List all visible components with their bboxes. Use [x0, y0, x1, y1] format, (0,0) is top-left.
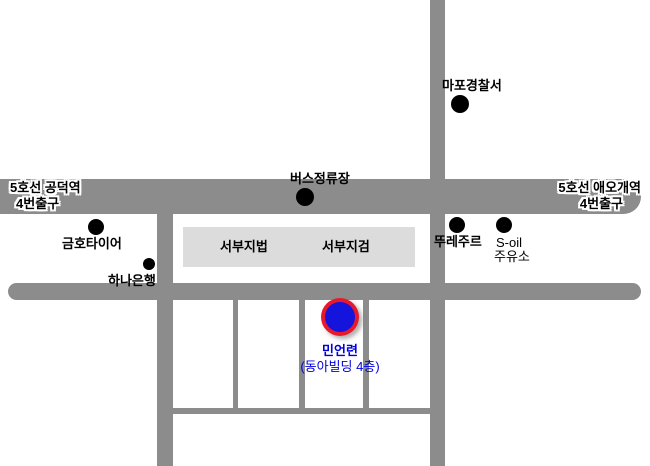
- hana-bank-dot: [143, 258, 155, 270]
- location-map: 서부지법 서부지검 5호선 공덕역 4번출구 5호선 애오개역 4번출구 마포경…: [0, 0, 650, 466]
- road-left-vertical: [157, 180, 173, 466]
- mapo-police-label: 마포경찰서: [442, 79, 502, 93]
- prosecutors-label: 서부지검: [322, 240, 370, 254]
- destination-marker: [321, 298, 359, 336]
- kumho-tire-label: 금호타이어: [62, 237, 122, 251]
- road-right-vertical: [430, 0, 445, 466]
- mapo-police-dot: [451, 95, 469, 113]
- road-second-horizontal: [8, 283, 641, 300]
- station-aeogae-label: 5호선 애오개역: [558, 181, 641, 195]
- station-gongdeok-exit-label: 4번출구: [16, 197, 59, 211]
- court-building-box: 서부지법 서부지검: [183, 227, 415, 267]
- destination-marker-fill: [325, 302, 355, 332]
- bus-stop-label: 버스정류장: [290, 172, 350, 186]
- bus-stop-dot: [296, 188, 314, 206]
- station-gongdeok-label: 5호선 공덕역: [10, 181, 81, 195]
- s-oil-label: S-oil: [496, 236, 522, 250]
- kumho-tire-dot: [88, 219, 104, 235]
- destination-name: 민언련: [240, 344, 440, 358]
- station-aeogae-exit-label: 4번출구: [580, 197, 623, 211]
- tous-les-jours-dot: [449, 217, 465, 233]
- street-vertical-1: [233, 300, 238, 414]
- tous-les-jours-label: 뚜레주르: [434, 235, 482, 249]
- s-oil-dot: [496, 217, 512, 233]
- s-oil-label-line2: 주유소: [494, 250, 530, 264]
- court-label: 서부지법: [220, 240, 268, 254]
- destination-building: (동아빌딩 4층): [240, 360, 440, 374]
- hana-bank-label: 하나은행: [108, 274, 156, 288]
